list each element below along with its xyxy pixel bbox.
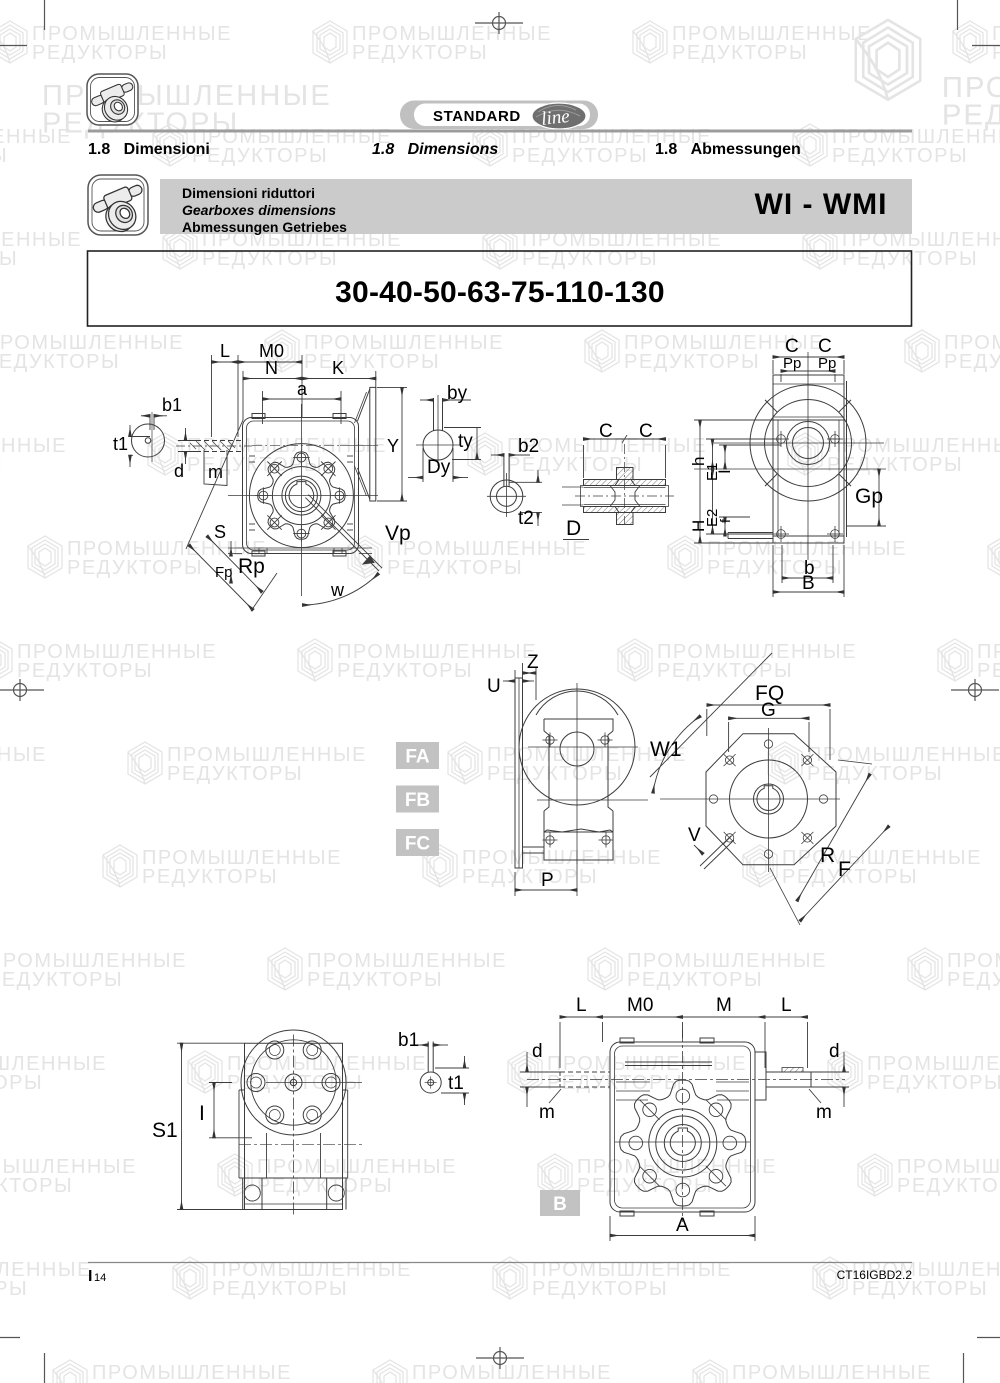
- svg-text:Gp: Gp: [855, 485, 883, 508]
- svg-text:S1: S1: [152, 1119, 178, 1142]
- svg-text:M0: M0: [627, 995, 653, 1016]
- svg-text:I: I: [715, 469, 734, 474]
- svg-text:I: I: [199, 1102, 205, 1125]
- svg-text:m: m: [208, 462, 223, 482]
- svg-text:t1: t1: [448, 1073, 464, 1094]
- svg-text:CT16IGBD2.2: CT16IGBD2.2: [837, 1268, 913, 1282]
- svg-text:F: F: [838, 858, 851, 881]
- svg-text:P: P: [541, 870, 554, 891]
- svg-text:H: H: [689, 520, 708, 532]
- svg-text:R: R: [820, 844, 835, 867]
- svg-text:C: C: [785, 336, 799, 357]
- svg-text:t1: t1: [113, 434, 128, 454]
- svg-text:L: L: [220, 341, 230, 361]
- svg-text:C: C: [818, 336, 832, 357]
- svg-text:M: M: [716, 995, 732, 1016]
- svg-text:U: U: [487, 676, 501, 697]
- svg-text:m: m: [816, 1102, 832, 1123]
- svg-text:V: V: [688, 825, 701, 846]
- svg-text:1.8 Dimensioni: 1.8 Dimensioni: [88, 141, 210, 158]
- svg-text:K: K: [332, 358, 344, 378]
- svg-text:by: by: [447, 383, 468, 404]
- svg-text:1.8 Abmessungen: 1.8 Abmessungen: [655, 141, 801, 158]
- svg-text:Pp: Pp: [818, 355, 836, 372]
- svg-text:W1: W1: [650, 738, 682, 761]
- svg-text:w: w: [330, 580, 345, 600]
- svg-text:FC: FC: [405, 834, 431, 855]
- svg-text:FB: FB: [405, 790, 430, 811]
- svg-text:Z: Z: [527, 652, 539, 673]
- svg-text:C: C: [639, 421, 653, 442]
- svg-text:b2: b2: [518, 436, 539, 457]
- svg-text:d: d: [174, 461, 184, 481]
- svg-text:d: d: [829, 1041, 840, 1062]
- svg-text:Dy: Dy: [427, 457, 451, 478]
- svg-text:Abmessungen Getriebes: Abmessungen Getriebes: [182, 219, 347, 235]
- svg-text:Gearboxes dimensions: Gearboxes dimensions: [182, 202, 336, 218]
- svg-text:a: a: [297, 379, 308, 399]
- svg-text:Y: Y: [387, 436, 399, 456]
- svg-text:C: C: [599, 421, 613, 442]
- svg-text:I: I: [88, 1268, 92, 1285]
- svg-text:14: 14: [94, 1272, 106, 1284]
- svg-text:d: d: [532, 1041, 543, 1062]
- svg-text:G: G: [761, 700, 776, 721]
- svg-text:D: D: [566, 517, 581, 540]
- svg-text:line: line: [540, 106, 571, 130]
- svg-text:S: S: [214, 522, 226, 542]
- svg-text:b1: b1: [398, 1030, 419, 1051]
- svg-text:FA: FA: [405, 747, 430, 768]
- svg-text:ty: ty: [458, 431, 473, 452]
- svg-text:Vp: Vp: [385, 522, 411, 545]
- svg-text:t2: t2: [518, 508, 534, 529]
- svg-text:B: B: [553, 1194, 567, 1215]
- svg-text:WI - WMI: WI - WMI: [755, 188, 888, 221]
- svg-text:N: N: [265, 358, 278, 378]
- svg-text:Pp: Pp: [783, 355, 801, 372]
- svg-text:B: B: [802, 573, 815, 594]
- svg-text:Dimensioni riduttori: Dimensioni riduttori: [182, 185, 315, 201]
- svg-text:m: m: [539, 1102, 555, 1123]
- svg-text:f: f: [717, 519, 733, 523]
- svg-text:30-40-50-63-75-110-130: 30-40-50-63-75-110-130: [335, 276, 665, 309]
- svg-text:L: L: [781, 995, 792, 1016]
- svg-text:Rp: Rp: [238, 555, 265, 578]
- svg-text:1.8 Dimensions: 1.8 Dimensions: [372, 141, 498, 158]
- svg-text:A: A: [676, 1215, 689, 1236]
- svg-text:L: L: [576, 995, 587, 1016]
- svg-text:b1: b1: [162, 395, 182, 415]
- svg-text:STANDARD: STANDARD: [433, 108, 521, 125]
- svg-text:Fp: Fp: [215, 564, 233, 581]
